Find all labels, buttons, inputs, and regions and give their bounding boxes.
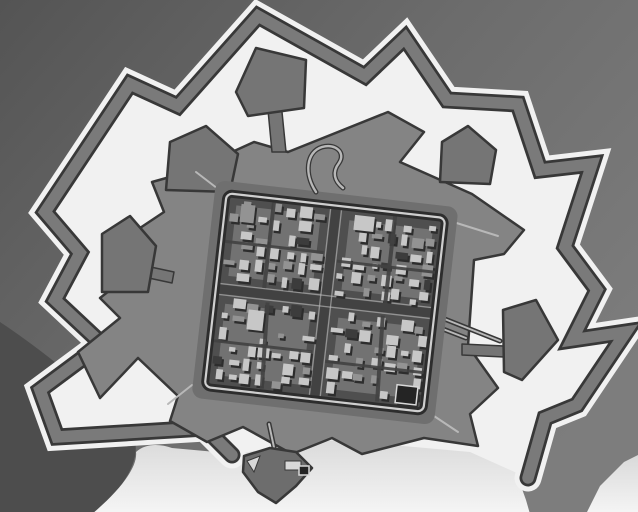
building — [342, 371, 353, 379]
building — [229, 374, 237, 380]
building — [229, 347, 236, 352]
building — [311, 253, 323, 262]
building — [300, 206, 314, 219]
building — [362, 321, 371, 327]
building — [351, 272, 362, 284]
building — [336, 273, 342, 279]
building — [363, 288, 370, 297]
building — [429, 226, 436, 232]
building — [394, 276, 403, 282]
building — [290, 305, 302, 318]
building — [212, 356, 222, 365]
building — [239, 260, 249, 271]
building — [271, 353, 281, 359]
building — [287, 252, 295, 260]
building — [271, 381, 281, 389]
fortress-aerial-photograph — [0, 0, 638, 512]
building — [367, 275, 375, 282]
building — [370, 246, 380, 258]
building — [390, 288, 399, 300]
building — [411, 238, 424, 249]
building — [221, 312, 227, 318]
landmark-sw-hall — [246, 309, 264, 331]
building — [418, 336, 428, 348]
building — [254, 260, 262, 273]
building — [233, 298, 247, 309]
building — [308, 311, 315, 320]
building — [344, 343, 351, 353]
outwork-courtyard — [299, 466, 309, 475]
building — [258, 217, 267, 223]
building — [371, 375, 378, 384]
building — [286, 208, 296, 218]
building — [298, 263, 306, 275]
building — [288, 235, 295, 247]
building — [240, 231, 252, 240]
building — [298, 220, 312, 232]
building — [283, 261, 293, 270]
landmark-se-court — [395, 385, 418, 405]
building — [412, 350, 423, 362]
building — [401, 319, 415, 332]
building — [291, 278, 302, 290]
building — [215, 369, 223, 380]
building — [379, 391, 388, 400]
walled-town — [191, 180, 458, 425]
building — [361, 245, 367, 255]
building — [282, 306, 289, 313]
building — [218, 327, 227, 340]
landmark-ne-hall — [353, 215, 375, 232]
building — [359, 330, 371, 342]
building — [236, 273, 249, 282]
building — [281, 376, 290, 384]
building — [395, 252, 408, 260]
building — [267, 274, 275, 283]
star-fort-scene — [0, 0, 638, 512]
building — [352, 374, 362, 382]
building — [403, 225, 412, 232]
building — [296, 237, 309, 245]
building — [300, 253, 306, 262]
building — [401, 351, 409, 357]
building — [348, 312, 355, 321]
building — [334, 291, 343, 297]
building — [424, 280, 431, 291]
building — [419, 292, 429, 301]
building — [289, 350, 299, 359]
building — [229, 213, 238, 222]
building — [425, 238, 435, 247]
building — [386, 345, 396, 358]
building — [386, 335, 399, 346]
building — [345, 329, 358, 339]
building — [376, 222, 382, 228]
building — [409, 299, 416, 305]
building — [414, 326, 423, 334]
building — [326, 367, 339, 380]
building — [308, 278, 320, 291]
building — [328, 355, 338, 361]
building — [298, 377, 309, 385]
landmark-nw-hall — [240, 204, 256, 223]
building — [278, 333, 284, 338]
building — [326, 381, 335, 393]
building — [239, 373, 250, 384]
building — [303, 367, 311, 375]
building — [282, 363, 294, 376]
building — [409, 279, 420, 287]
building — [410, 254, 422, 263]
causeway-east — [462, 344, 504, 357]
